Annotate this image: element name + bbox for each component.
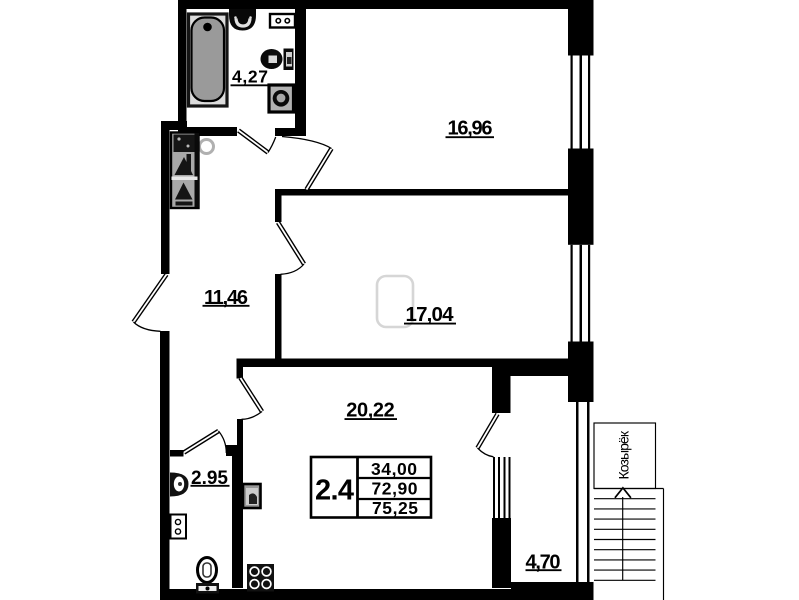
svg-text:34,00: 34,00 bbox=[371, 459, 417, 479]
svg-text:72,90: 72,90 bbox=[372, 479, 418, 499]
svg-text:75,25: 75,25 bbox=[372, 498, 418, 518]
svg-text:4,27: 4,27 bbox=[232, 67, 268, 87]
svg-text:16,96: 16,96 bbox=[448, 118, 493, 140]
svg-text:2.4: 2.4 bbox=[315, 475, 354, 507]
svg-text:17,04: 17,04 bbox=[406, 303, 455, 326]
svg-text:Козырёк: Козырёк bbox=[616, 430, 632, 479]
